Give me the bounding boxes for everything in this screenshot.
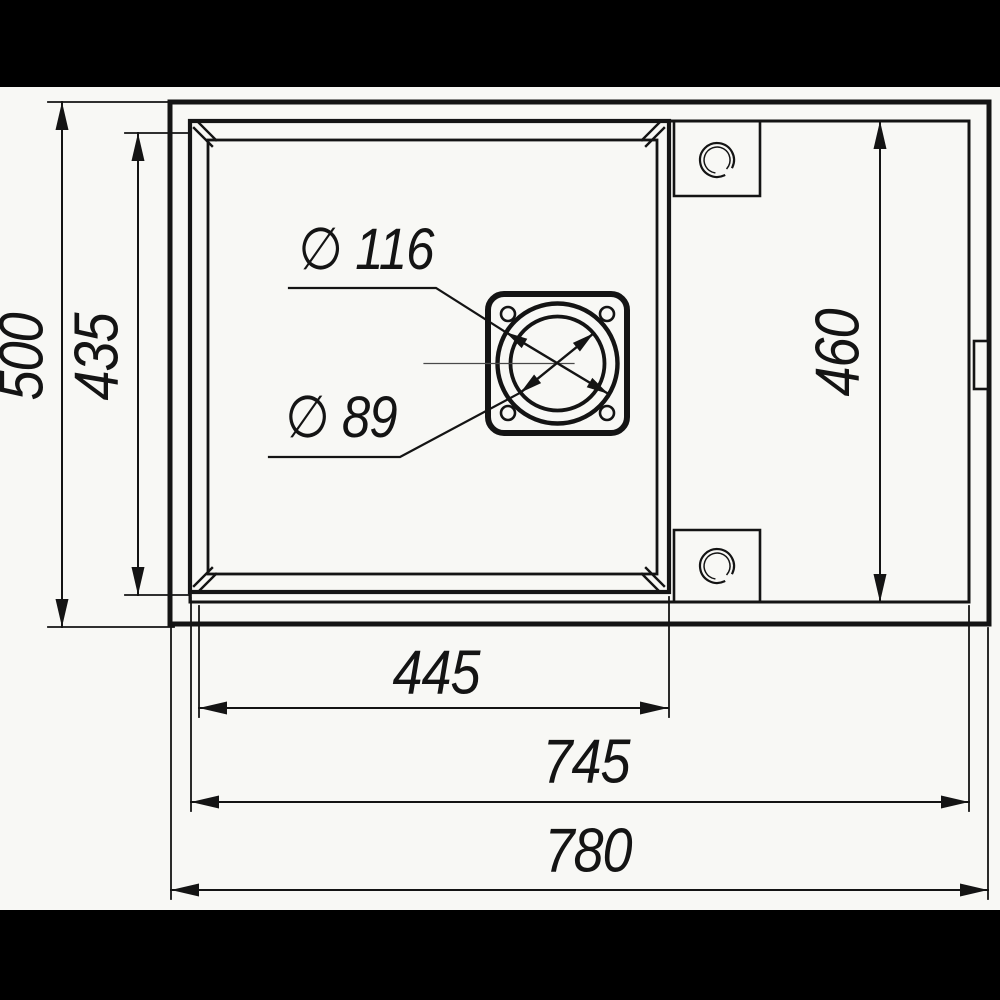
overflow-tab [974,341,988,389]
drawing-canvas [0,0,1000,1000]
faucet-ledge-bottom [674,530,760,601]
faucet-hole-bottom [700,549,734,583]
dimension-bowl-height [125,133,191,595]
dim-label-inner-width: 745 [542,731,629,793]
dim-label-bowl-height: 435 [66,313,128,400]
callout-label-drain-outer-diameter: ∅ 116 [299,220,434,279]
faucet-hole-top [700,143,734,177]
drain-assembly [424,294,627,433]
dim-label-overall-width: 780 [544,820,631,882]
callout-label-drain-inner-diameter: ∅ 89 [285,388,396,447]
dim-label-inner-height-right: 460 [807,309,869,396]
sink-technical-drawing: 500 435 460 445 745 780 ∅ 116 ∅ 89 [0,0,1000,1000]
faucet-ledge-top [674,122,760,196]
dim-label-overall-height: 500 [0,313,53,400]
bowl-corner-chamfers [194,123,664,591]
dim-label-bowl-width: 445 [392,642,479,704]
bowl-outline [190,121,669,592]
dimension-inner-height-right [874,121,887,602]
